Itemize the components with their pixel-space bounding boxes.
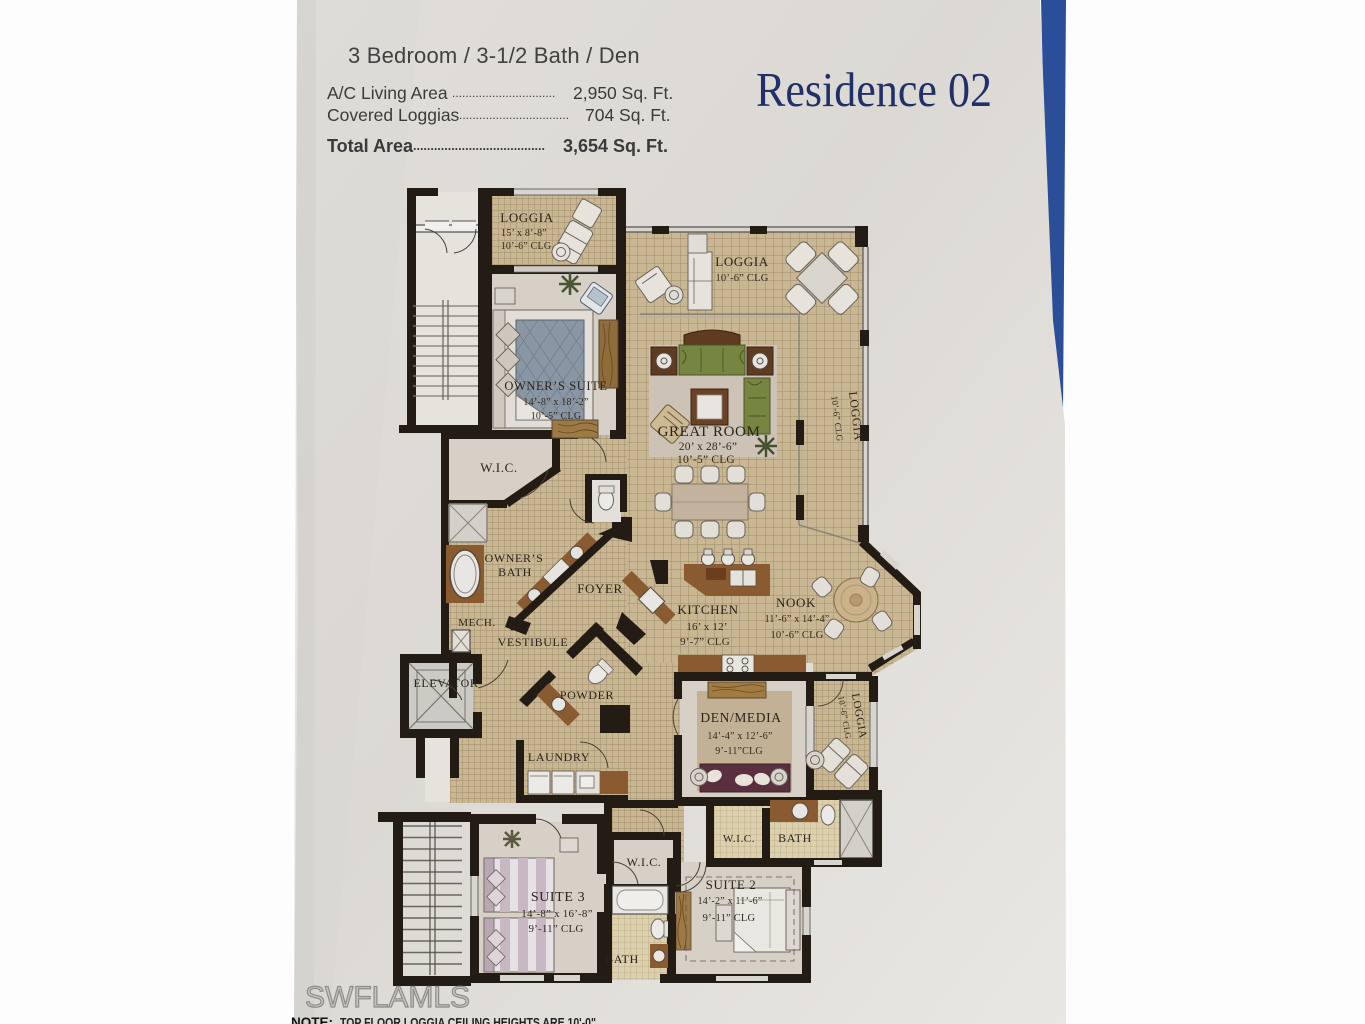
svg-text:2,950 Sq. Ft.: 2,950 Sq. Ft.	[573, 83, 673, 103]
svg-text:704 Sq. Ft.: 704 Sq. Ft.	[585, 105, 671, 125]
svg-text:10’-6” CLG: 10’-6” CLG	[715, 273, 768, 284]
svg-text:GREAT ROOM: GREAT ROOM	[658, 424, 761, 440]
svg-text:NOTE:: NOTE:	[291, 1015, 333, 1024]
svg-text:16’ x 12’: 16’ x 12’	[686, 621, 727, 633]
svg-text:DEN/MEDIA: DEN/MEDIA	[700, 710, 781, 725]
svg-text:..............................: .................................	[459, 108, 569, 122]
svg-text:ELEVATOR: ELEVATOR	[413, 676, 478, 690]
svg-text:OWNER’S: OWNER’S	[485, 551, 544, 565]
svg-text:3,654 Sq. Ft.: 3,654 Sq. Ft.	[563, 136, 668, 156]
svg-text:14’-2” x 11’-6”: 14’-2” x 11’-6”	[698, 896, 763, 907]
svg-text:3 Bedroom / 3-1/2 Bath / Den: 3 Bedroom / 3-1/2 Bath / Den	[348, 43, 640, 68]
svg-text:SUITE 3: SUITE 3	[531, 890, 585, 905]
svg-text:KITCHEN: KITCHEN	[677, 602, 738, 617]
svg-text:OWNER’S SUITE: OWNER’S SUITE	[504, 379, 607, 393]
svg-text:10’-5” CLG: 10’-5” CLG	[531, 411, 582, 422]
svg-text:W.I.C.: W.I.C.	[723, 833, 755, 845]
svg-text:Total Area: Total Area	[327, 136, 414, 156]
svg-text:11’-6” x 14’-4”: 11’-6” x 14’-4”	[765, 614, 830, 625]
svg-text:20’ x 28’-6”: 20’ x 28’-6”	[679, 441, 737, 453]
svg-text:MECH.: MECH.	[458, 617, 496, 629]
svg-text:9’-7” CLG: 9’-7” CLG	[680, 636, 730, 648]
svg-text:10’-6” CLG: 10’-6” CLG	[770, 630, 823, 641]
svg-text:A/C Living Area: A/C Living Area	[327, 83, 448, 103]
svg-text:..............................: ...............................	[452, 86, 555, 100]
svg-text:10’-5” CLG: 10’-5” CLG	[677, 454, 735, 466]
svg-text:SWFLAMLS: SWFLAMLS	[305, 981, 470, 1014]
svg-text:14’-4” x 12’-6”: 14’-4” x 12’-6”	[707, 731, 772, 742]
svg-text:Covered Loggias: Covered Loggias	[327, 105, 460, 125]
svg-text:NOOK: NOOK	[776, 595, 816, 610]
svg-text:BATH: BATH	[605, 952, 639, 966]
svg-text:10’-6” CLG: 10’-6” CLG	[501, 241, 552, 252]
svg-text:LOGGIA: LOGGIA	[500, 210, 553, 225]
svg-text:VESTIBULE: VESTIBULE	[498, 635, 569, 649]
svg-text:LOGGIA: LOGGIA	[715, 254, 768, 269]
svg-text:..............................: ......................................	[413, 139, 545, 153]
svg-text:14’-8” x 18’-2”: 14’-8” x 18’-2”	[523, 397, 588, 408]
svg-text:14’-8” x 16’-8”: 14’-8” x 16’-8”	[521, 908, 592, 920]
svg-text:W.I.C.: W.I.C.	[480, 460, 517, 475]
svg-text:W.I.C.: W.I.C.	[627, 855, 662, 869]
svg-text:LAUNDRY: LAUNDRY	[528, 750, 590, 764]
svg-text:SUITE 2: SUITE 2	[706, 877, 757, 892]
svg-text:9’-11” CLG: 9’-11” CLG	[528, 923, 583, 935]
svg-text:15’ x 8’-8”: 15’ x 8’-8”	[501, 228, 547, 239]
svg-text:TOP FLOOR LOGGIA CEILING HEIGH: TOP FLOOR LOGGIA CEILING HEIGHTS ARE 10'…	[340, 1016, 596, 1024]
svg-text:9’-11” CLG: 9’-11” CLG	[703, 913, 756, 924]
svg-text:POWDER: POWDER	[560, 688, 614, 702]
svg-text:Residence 02: Residence 02	[756, 62, 992, 117]
svg-text:FOYER: FOYER	[577, 581, 623, 596]
svg-text:9’-11”CLG: 9’-11”CLG	[715, 746, 763, 757]
svg-text:BATH: BATH	[498, 565, 532, 579]
svg-text:BATH: BATH	[778, 831, 812, 845]
